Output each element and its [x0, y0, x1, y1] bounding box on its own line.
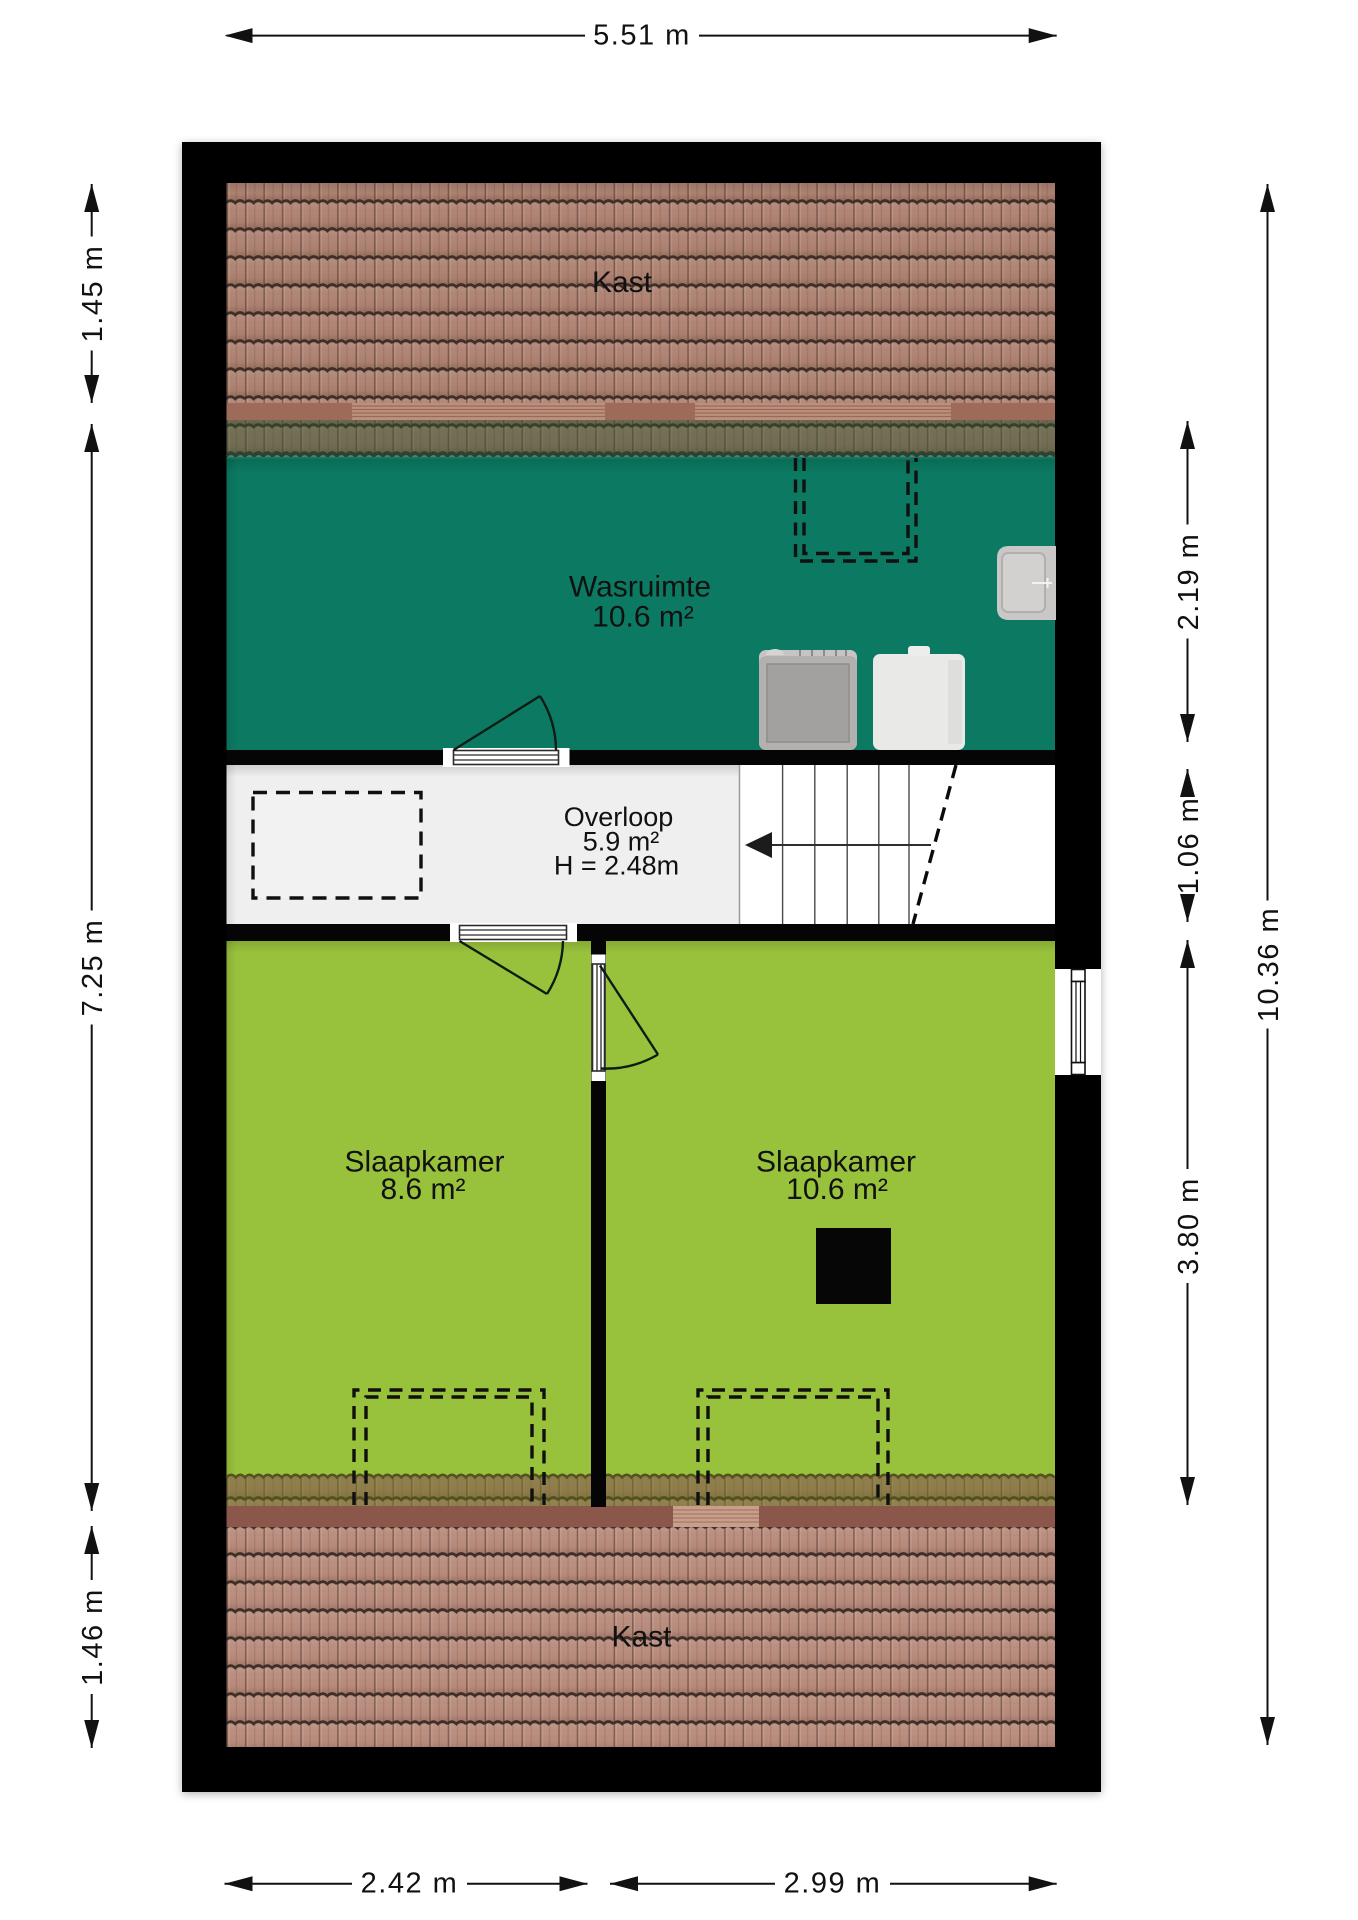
svg-text:8.6 m²: 8.6 m²: [380, 1173, 465, 1206]
svg-text:7.25 m: 7.25 m: [77, 919, 109, 1017]
svg-text:10.6 m²: 10.6 m²: [592, 601, 694, 634]
svg-text:2.99 m: 2.99 m: [784, 1868, 882, 1900]
svg-text:3.80 m: 3.80 m: [1173, 1177, 1205, 1275]
svg-text:10.36 m: 10.36 m: [1253, 907, 1285, 1022]
svg-text:10.6 m²: 10.6 m²: [786, 1173, 888, 1206]
svg-text:2.42 m: 2.42 m: [361, 1868, 459, 1900]
svg-text:Wasruimte: Wasruimte: [569, 571, 711, 604]
svg-text:1.06 m: 1.06 m: [1173, 797, 1205, 895]
svg-text:H = 2.48m: H = 2.48m: [554, 851, 679, 881]
svg-text:Kast: Kast: [592, 266, 653, 299]
svg-text:1.45 m: 1.45 m: [77, 245, 109, 343]
svg-text:Kast: Kast: [611, 1621, 672, 1654]
svg-text:2.19 m: 2.19 m: [1173, 533, 1205, 631]
svg-text:5.51 m: 5.51 m: [593, 20, 691, 52]
svg-text:1.46 m: 1.46 m: [77, 1588, 109, 1686]
